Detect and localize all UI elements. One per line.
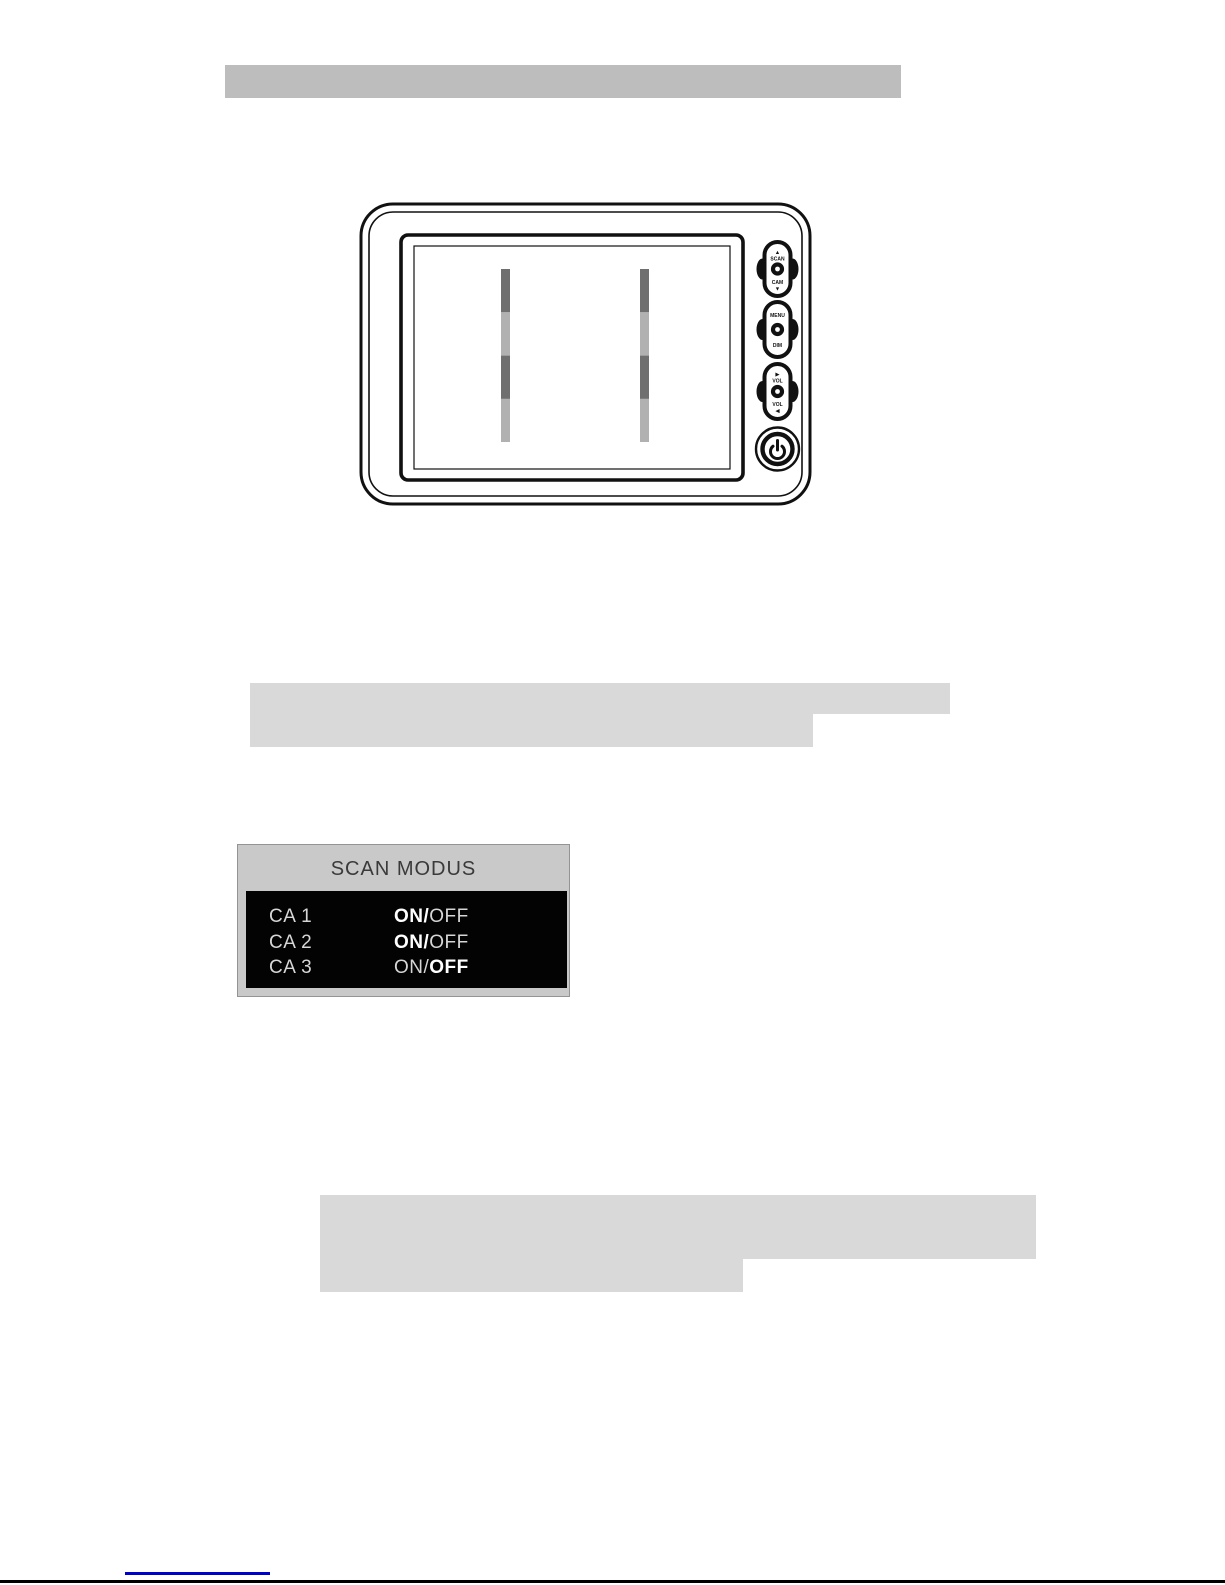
scan-row-ca2: CA 2ON/OFF bbox=[246, 930, 567, 956]
dim-label: DIM bbox=[773, 343, 782, 349]
redacted-text-line bbox=[250, 683, 950, 714]
scan-row-ca3: CA 3ON/OFF bbox=[246, 955, 567, 981]
scan-row-ca1: CA 1ON/OFF bbox=[246, 904, 567, 930]
value-off: OFF bbox=[429, 906, 469, 927]
manual-page: ▲ SCAN CAM ▼ MENU DIM ▶ VOL VOL bbox=[0, 0, 1225, 1585]
value-on: ON/ bbox=[394, 957, 429, 978]
redacted-text-line bbox=[320, 1259, 743, 1292]
cam-label: CAM bbox=[772, 280, 783, 286]
page-bottom-rule bbox=[0, 1580, 1225, 1583]
camera-label: CA 3 bbox=[269, 955, 394, 981]
on-off-value: ON/OFF bbox=[394, 957, 469, 978]
scan-modus-title: SCAN MODUS bbox=[238, 845, 569, 891]
monitor-screen bbox=[401, 235, 743, 480]
scan-label: SCAN bbox=[770, 257, 785, 263]
redacted-text-line bbox=[320, 1195, 1036, 1259]
scan-modus-osd-panel: SCAN MODUS CA 1ON/OFF CA 2ON/OFF CA 3ON/… bbox=[237, 844, 570, 997]
footer-link-underline[interactable] bbox=[125, 1572, 270, 1575]
value-on: ON/ bbox=[394, 906, 429, 927]
vol-up-label: VOL bbox=[772, 379, 782, 385]
signal-bar-right bbox=[640, 269, 649, 442]
camera-label: CA 2 bbox=[269, 930, 394, 956]
up-arrow-icon: ▲ bbox=[775, 250, 780, 256]
scan-modus-screen: CA 1ON/OFF CA 2ON/OFF CA 3ON/OFF bbox=[246, 891, 567, 988]
menu-label: MENU bbox=[770, 313, 785, 319]
signal-bar-left bbox=[501, 269, 510, 442]
power-button bbox=[756, 428, 799, 471]
value-on: ON/ bbox=[394, 932, 429, 953]
camera-label: CA 1 bbox=[269, 904, 394, 930]
monitor-illustration: ▲ SCAN CAM ▼ MENU DIM ▶ VOL VOL bbox=[353, 197, 813, 509]
vol-down-label: VOL bbox=[772, 402, 782, 408]
redacted-text-line bbox=[250, 714, 813, 747]
on-off-value: ON/OFF bbox=[394, 932, 469, 953]
value-off: OFF bbox=[429, 957, 469, 978]
redacted-title-bar bbox=[225, 65, 901, 98]
on-off-value: ON/OFF bbox=[394, 906, 469, 927]
down-arrow-icon: ▼ bbox=[775, 287, 780, 293]
value-off: OFF bbox=[429, 932, 469, 953]
